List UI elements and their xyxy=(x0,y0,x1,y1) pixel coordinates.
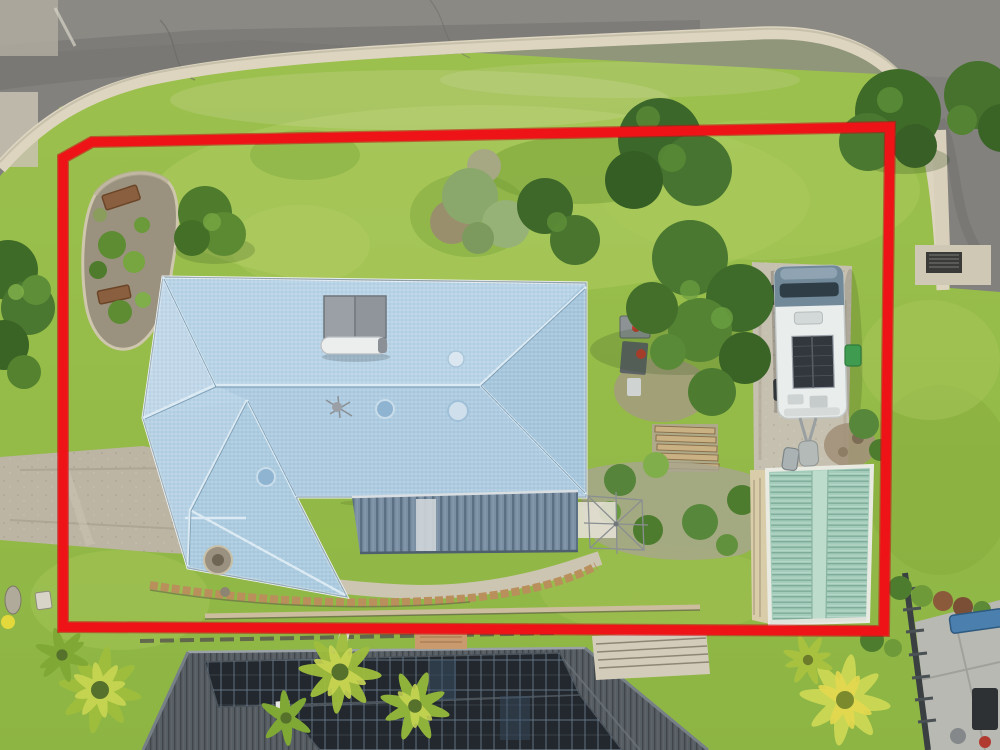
aerial-photo xyxy=(0,0,1000,750)
garden-shed xyxy=(750,447,872,624)
patio-roof xyxy=(352,491,578,553)
yellow-ball xyxy=(1,615,15,629)
shed-flue-vent xyxy=(782,447,800,471)
aerial-photo-canvas xyxy=(0,0,1000,750)
wheelie-bin xyxy=(845,345,861,366)
solar-hot-water xyxy=(321,296,390,362)
